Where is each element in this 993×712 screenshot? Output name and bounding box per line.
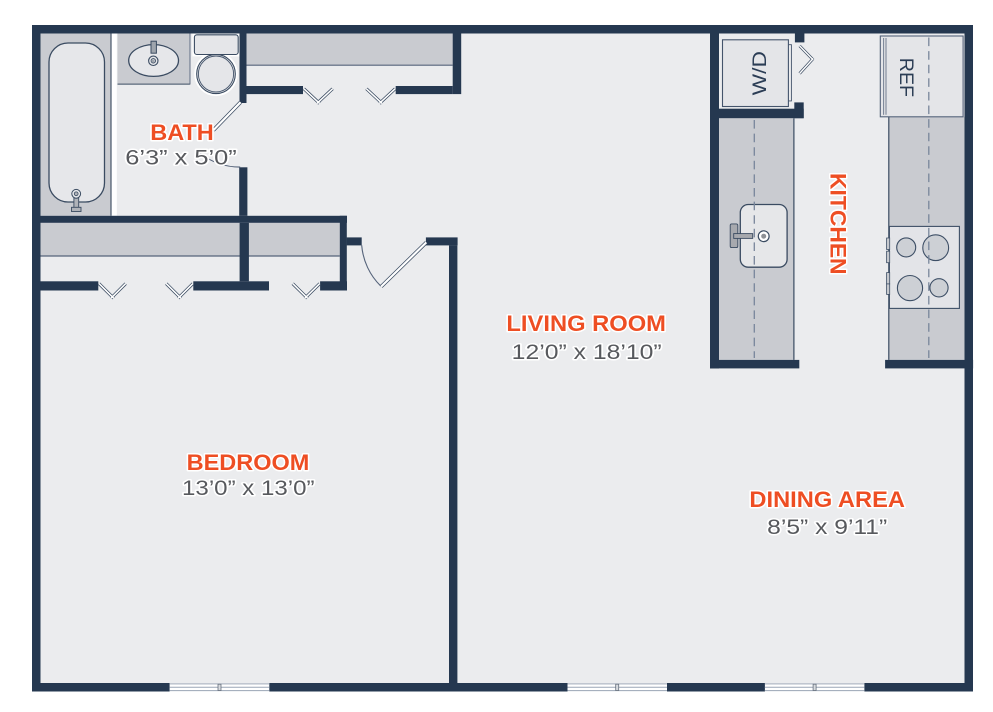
svg-text:LIVING ROOM: LIVING ROOM [506, 311, 666, 336]
svg-text:BEDROOM: BEDROOM [187, 450, 310, 475]
svg-text:12’0” x 18’10”: 12’0” x 18’10” [512, 341, 662, 364]
svg-text:REF: REF [895, 58, 916, 97]
svg-text:13’0” x 13’0”: 13’0” x 13’0” [182, 477, 315, 500]
svg-text:BATH: BATH [150, 120, 214, 145]
svg-text:8’5” x 9’11”: 8’5” x 9’11” [767, 516, 887, 539]
svg-text:DINING AREA: DINING AREA [749, 487, 905, 512]
svg-text:6’3” x 5’0”: 6’3” x 5’0” [125, 147, 237, 170]
svg-text:KITCHEN: KITCHEN [826, 173, 851, 274]
svg-text:W/D: W/D [750, 51, 771, 95]
